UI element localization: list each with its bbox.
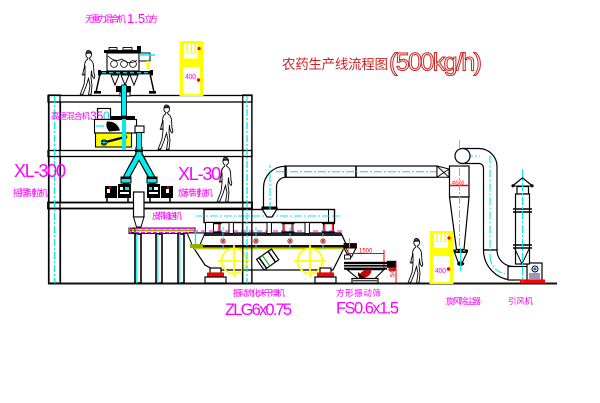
svg-text:1500: 1500 <box>359 249 373 255</box>
svg-text:400: 400 <box>435 268 446 275</box>
svg-text:摇摆制粒机: 摇摆制粒机 <box>13 187 48 198</box>
svg-text:高速混合机: 高速混合机 <box>51 111 90 121</box>
svg-text:FS0.6x1.5: FS0.6x1.5 <box>336 300 399 318</box>
svg-text:旋转制粒机: 旋转制粒机 <box>178 187 213 198</box>
svg-text:Φ500: Φ500 <box>452 181 465 187</box>
svg-text:400: 400 <box>185 74 196 81</box>
svg-text:545: 545 <box>391 266 397 277</box>
svg-text:方形振动筛: 方形振动筛 <box>336 288 381 298</box>
svg-text:XL-300: XL-300 <box>14 161 66 181</box>
svg-text:1.5: 1.5 <box>127 11 145 26</box>
svg-text:立方: 立方 <box>144 13 158 24</box>
svg-text:ZLG6x0.75: ZLG6x0.75 <box>225 301 292 319</box>
svg-text:引风机: 引风机 <box>508 296 533 306</box>
svg-text:旋风除尘器: 旋风除尘器 <box>446 296 481 306</box>
svg-text:皮带输送机: 皮带输送机 <box>152 211 182 221</box>
svg-text:无重力混合机: 无重力混合机 <box>85 13 126 24</box>
svg-text:(500kg/h): (500kg/h) <box>389 49 482 77</box>
svg-text:振动流化床干燥机: 振动流化床干燥机 <box>233 288 285 298</box>
svg-text:农药生产线流程图: 农药生产线流程图 <box>282 57 388 72</box>
